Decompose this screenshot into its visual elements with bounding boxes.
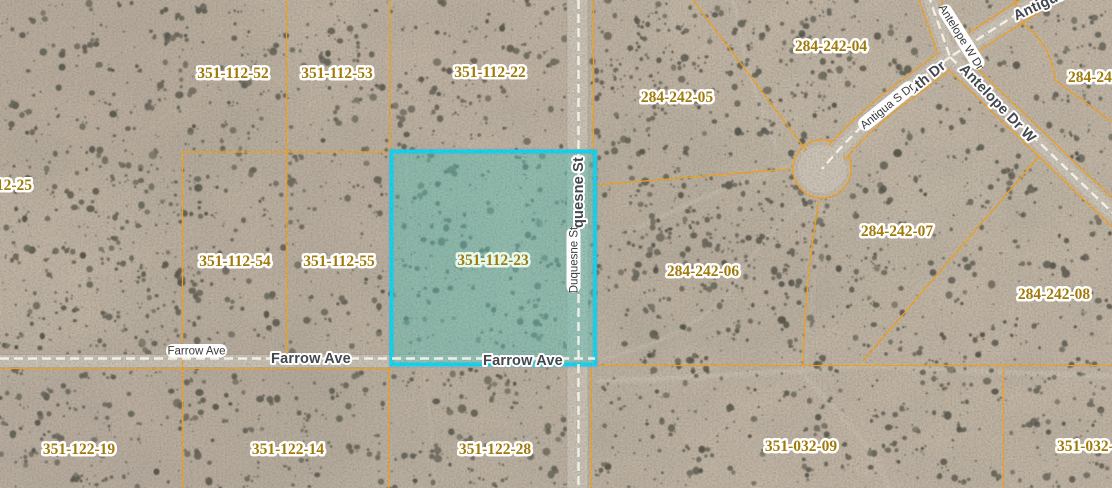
svg-text:Farrow Ave: Farrow Ave [168,346,226,358]
svg-text:284-242-06: 284-242-06 [667,263,740,280]
svg-text:284-243-22: 284-243-22 [1068,69,1112,86]
svg-text:Farrow Ave: Farrow Ave [483,353,563,369]
svg-text:284-242-04: 284-242-04 [795,38,868,55]
svg-text:284-242-07: 284-242-07 [861,223,934,240]
svg-text:351-122-19: 351-122-19 [43,441,116,458]
svg-text:351-112-52: 351-112-52 [197,65,269,82]
svg-text:351-032-09: 351-032-09 [765,438,838,455]
svg-text:351-112-23: 351-112-23 [457,252,529,269]
svg-text:351-122-28: 351-122-28 [459,441,532,458]
svg-text:351-112-54: 351-112-54 [199,253,271,270]
svg-text:quesne St: quesne St [571,157,587,228]
svg-text:351-122-14: 351-122-14 [252,441,325,458]
svg-text:351-032-09: 351-032-09 [1057,438,1112,455]
svg-text:Duquesne St: Duquesne St [569,226,581,293]
svg-text:351-112-55: 351-112-55 [303,253,375,270]
svg-text:Farrow Ave: Farrow Ave [271,351,351,367]
svg-text:284-242-08: 284-242-08 [1018,286,1091,303]
svg-text:351-112-22: 351-112-22 [454,64,526,81]
svg-text:284-242-05: 284-242-05 [641,89,714,106]
svg-text:351-112-53: 351-112-53 [301,65,373,82]
svg-text:351-112-25: 351-112-25 [0,177,32,194]
